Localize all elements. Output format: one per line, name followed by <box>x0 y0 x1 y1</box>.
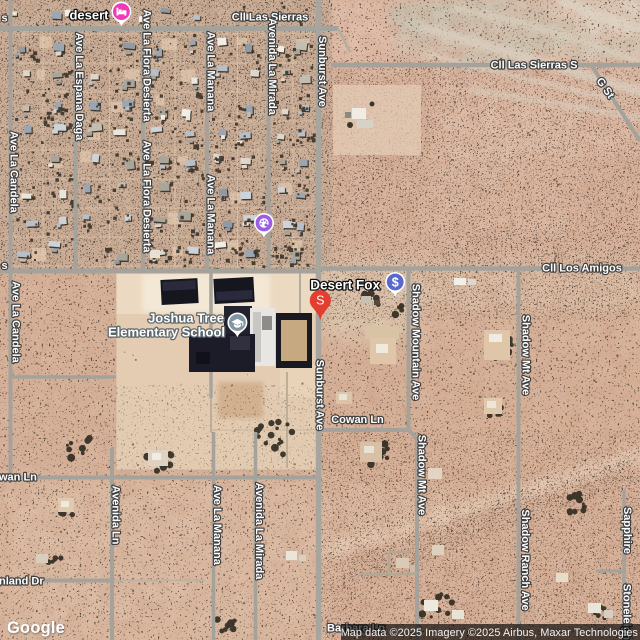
svg-text:Ave La Candela: Ave La Candela <box>8 131 20 213</box>
svg-text:desert: desert <box>69 8 109 23</box>
svg-text:Cowan Ln: Cowan Ln <box>331 414 384 426</box>
svg-text:Avenida Ln: Avenida Ln <box>110 486 122 545</box>
svg-text:Shadow Mt Ave: Shadow Mt Ave <box>416 435 428 515</box>
svg-text:Joshua Tree: Joshua Tree <box>148 311 224 326</box>
svg-text:Ave La Manana: Ave La Manana <box>205 32 217 113</box>
svg-text:Map data ©2025 Imagery ©2025 A: Map data ©2025 Imagery ©2025 Airbus, Max… <box>341 627 639 639</box>
svg-text:Shadow Mt Ave: Shadow Mt Ave <box>520 315 532 395</box>
svg-text:Elementary School: Elementary School <box>108 325 225 340</box>
svg-text:s: s <box>2 13 8 25</box>
svg-text:Sunburst Ave: Sunburst Ave <box>316 36 328 107</box>
svg-text:Ave La Candela: Ave La Candela <box>10 281 22 363</box>
svg-text:Sapphire: Sapphire <box>621 507 633 554</box>
svg-text:$: $ <box>392 275 399 289</box>
svg-text:S: S <box>316 294 324 308</box>
svg-text:nland Dr: nland Dr <box>0 576 44 588</box>
svg-text:Ave La Manana: Ave La Manana <box>211 485 223 566</box>
svg-text:Cll Los Amigos: Cll Los Amigos <box>542 263 622 275</box>
svg-text:Ave La Manana: Ave La Manana <box>205 175 217 256</box>
svg-text:s: s <box>2 260 8 272</box>
svg-text:Ave La Flora Desierta: Ave La Flora Desierta <box>141 9 153 122</box>
svg-text:Sunburst Ave: Sunburst Ave <box>314 360 326 431</box>
svg-text:Shadow Mountain Ave: Shadow Mountain Ave <box>410 284 422 401</box>
svg-text:Google: Google <box>7 619 65 637</box>
svg-text:Ave La Flora Desierta: Ave La Flora Desierta <box>141 140 153 253</box>
svg-text:Shadow Ranch Ave: Shadow Ranch Ave <box>519 509 531 610</box>
svg-text:Cll Las Sierras S: Cll Las Sierras S <box>491 60 578 72</box>
svg-text:Avenida La Mirada: Avenida La Mirada <box>253 483 265 581</box>
svg-text:Ave La Espana Daga: Ave La Espana Daga <box>73 33 85 142</box>
svg-text:wan Ln: wan Ln <box>0 472 37 484</box>
svg-text:Avenida La Mirada: Avenida La Mirada <box>266 18 278 116</box>
